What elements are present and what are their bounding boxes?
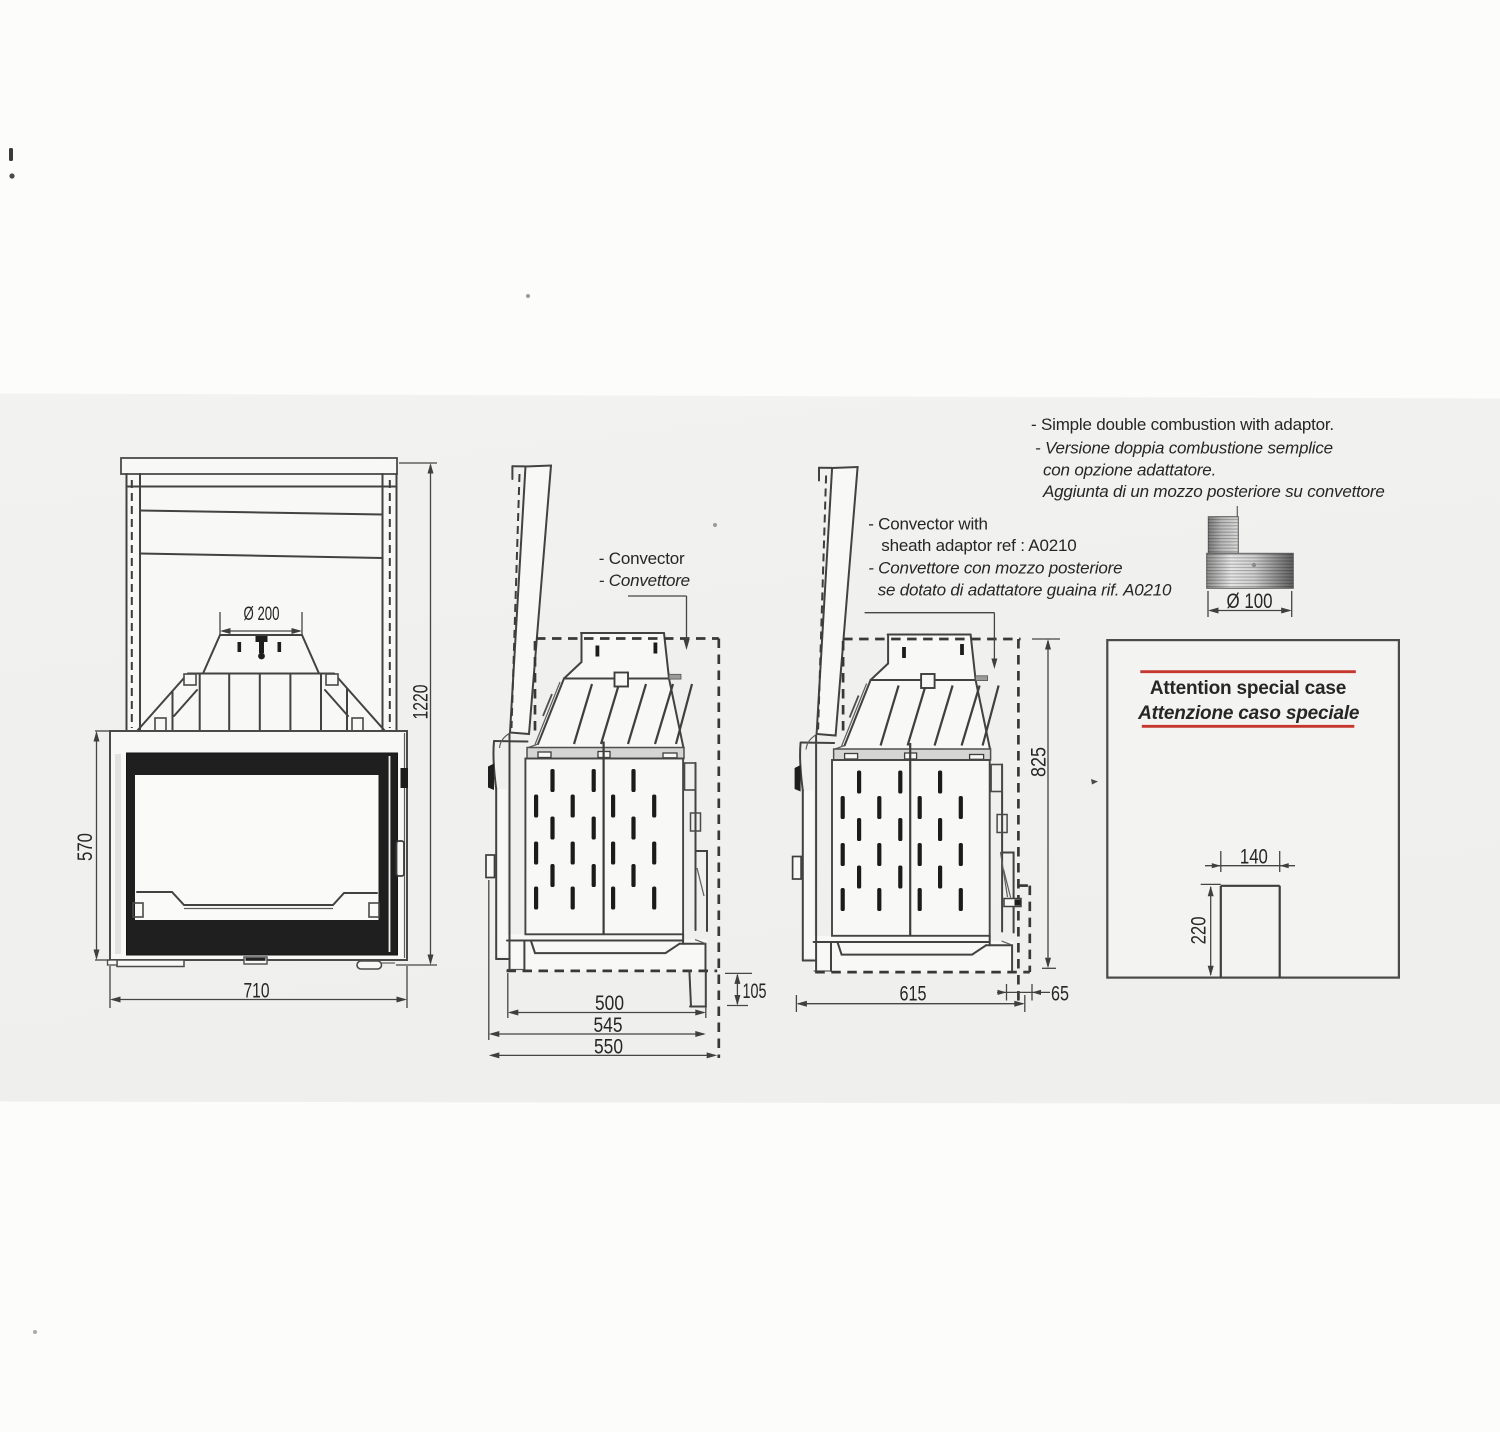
svg-text:550: 550 <box>594 1036 623 1059</box>
svg-text:- Convettore: - Convettore <box>599 571 690 590</box>
svg-text:- Convettore con mozzo poster: - Convettore con mozzo posteriore <box>868 559 1122 578</box>
svg-text:65: 65 <box>1051 983 1069 1006</box>
svg-text:615: 615 <box>900 983 927 1006</box>
svg-text:Attention special case: Attention special case <box>1150 678 1346 699</box>
svg-text:Aggiunta di un mozzo posterior: Aggiunta di un mozzo posteriore su conve… <box>1042 482 1385 501</box>
svg-text:Ø 200: Ø 200 <box>244 604 280 625</box>
svg-text:sheath adaptor ref : A0210: sheath adaptor ref : A0210 <box>881 536 1076 555</box>
svg-text:710: 710 <box>244 980 270 1003</box>
svg-text:- Simple double combustion wit: - Simple double combustion with adaptor. <box>1031 415 1334 434</box>
svg-text:105: 105 <box>743 980 767 1003</box>
svg-text:- Convector with: - Convector with <box>868 515 988 534</box>
svg-text:Ø 100: Ø 100 <box>1227 590 1273 613</box>
svg-text:con opzione adattatore.: con opzione adattatore. <box>1043 461 1216 480</box>
svg-text:se dotato di adattatore guaina: se dotato di adattatore guaina rif. A021… <box>878 581 1172 600</box>
svg-text:- Versione doppia combustione: - Versione doppia combustione semplice <box>1035 439 1333 458</box>
svg-text:545: 545 <box>594 1014 623 1037</box>
svg-text:Attenzione caso speciale: Attenzione caso speciale <box>1137 703 1360 724</box>
svg-text:220: 220 <box>1188 916 1211 944</box>
svg-text:- Convector: - Convector <box>599 549 685 568</box>
svg-text:570: 570 <box>74 833 97 861</box>
svg-text:500: 500 <box>595 992 624 1015</box>
svg-text:140: 140 <box>1240 846 1268 869</box>
svg-text:1220: 1220 <box>410 685 433 720</box>
svg-text:825: 825 <box>1027 747 1050 777</box>
